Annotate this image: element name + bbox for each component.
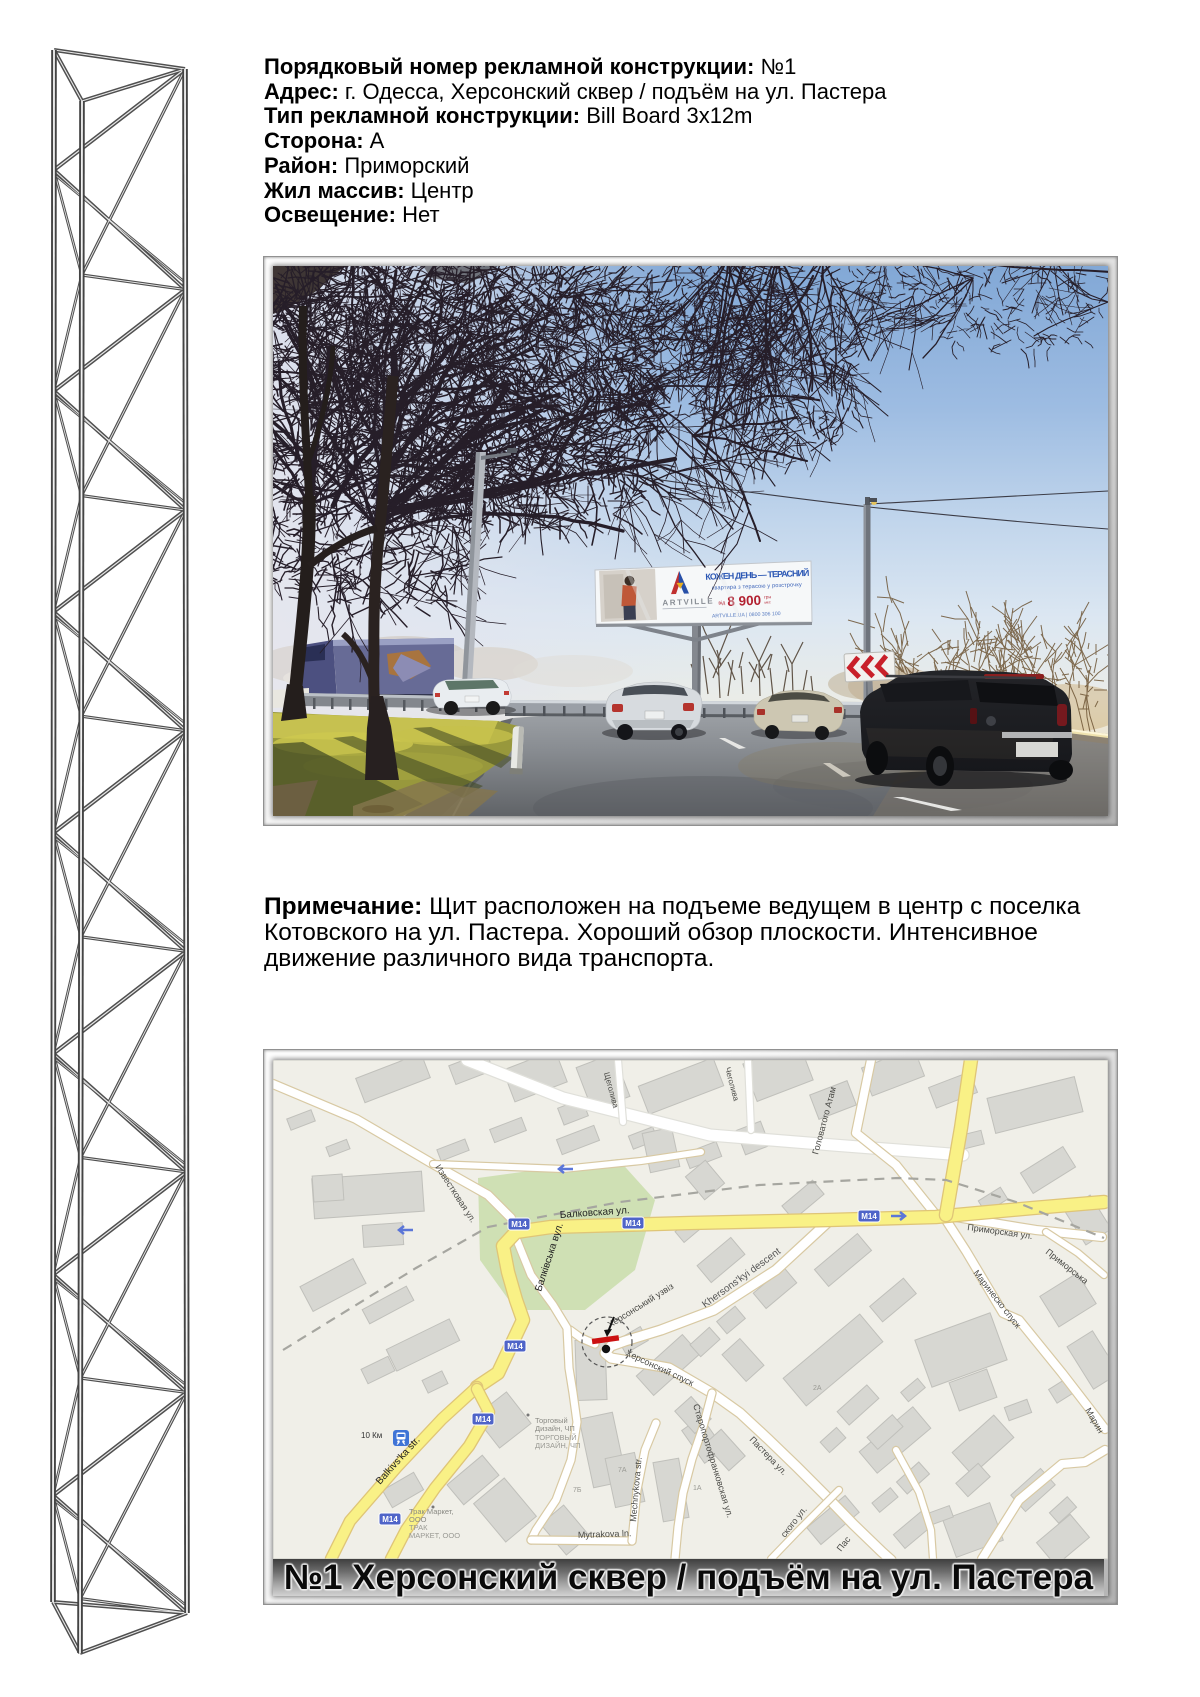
svg-text:Mytrakova ln.: Mytrakova ln. [578, 1528, 632, 1540]
svg-text:М14: М14 [625, 1219, 641, 1228]
svg-text:1А: 1А [693, 1485, 702, 1492]
svg-text:10 Км: 10 Км [361, 1431, 382, 1440]
svg-text:М14: М14 [475, 1415, 491, 1424]
svg-text:М14: М14 [861, 1212, 877, 1221]
svg-text:від: від [718, 600, 725, 606]
svg-text:2А: 2А [813, 1385, 822, 1392]
svg-text:ДИЗАЙН, ЧП: ДИЗАЙН, ЧП [535, 1441, 580, 1450]
svg-text:МАРКЕТ, ООО: МАРКЕТ, ООО [409, 1531, 460, 1540]
svg-text:М14: М14 [382, 1515, 398, 1524]
svg-text:7Б: 7Б [573, 1487, 582, 1494]
svg-text:7А: 7А [618, 1467, 627, 1474]
svg-text:М14: М14 [511, 1220, 527, 1229]
svg-text:Дизайн, ЧП: Дизайн, ЧП [535, 1424, 575, 1433]
svg-text:М14: М14 [507, 1342, 523, 1351]
svg-text:мес: мес [764, 600, 771, 604]
svg-text:грн: грн [764, 594, 771, 599]
